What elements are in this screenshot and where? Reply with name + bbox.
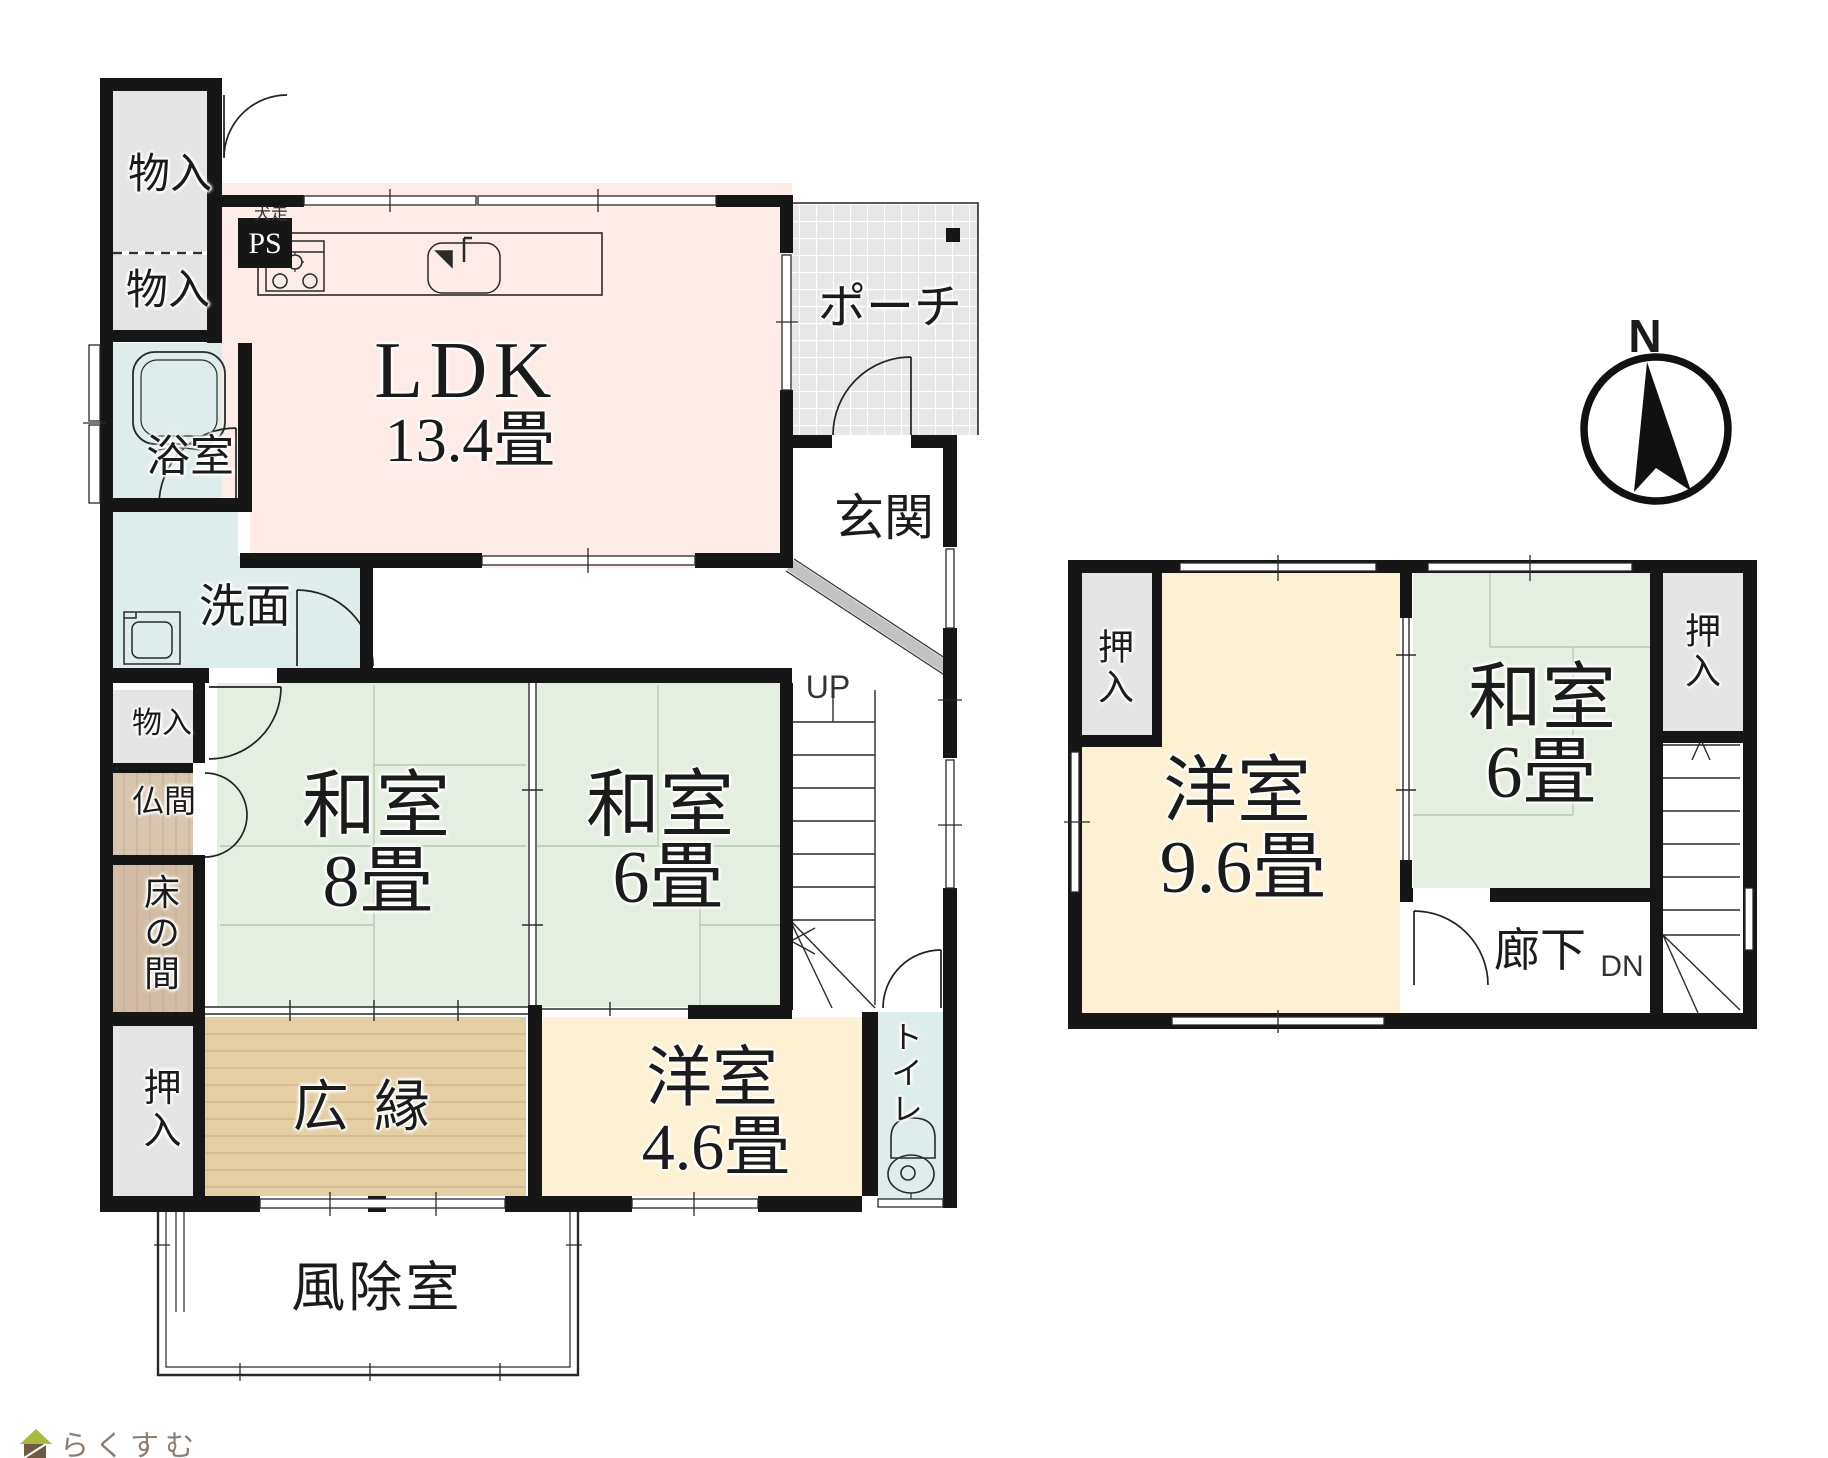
porch-pillar xyxy=(946,228,960,242)
label-oshiire-2f-left: 押入 xyxy=(1095,628,1131,709)
label-oshiire-2f-right: 押入 xyxy=(1682,612,1718,693)
label-windbreak: 風除室 xyxy=(291,1261,463,1315)
label-storage-small: 物入 xyxy=(132,709,192,739)
label-youshitsu96-size: 9.6畳 xyxy=(1160,831,1327,905)
label-hiroen: 広縁 xyxy=(293,1080,455,1136)
stairs-2f xyxy=(1663,740,1740,1013)
label-washitsu6-2f-size: 6畳 xyxy=(1486,736,1597,810)
label-youshitsu46-name: 洋室 xyxy=(646,1046,778,1112)
label-porch: ポーチ xyxy=(818,284,962,332)
door-backdoor xyxy=(224,95,287,158)
label-stairs-up: UP xyxy=(806,671,850,703)
label-ldk-name: LDK xyxy=(374,331,558,411)
label-bath: 浴室 xyxy=(146,435,234,479)
door-toilet xyxy=(883,950,941,1008)
label-compass-north: N xyxy=(1628,313,1661,359)
floorplan-page: 物入 物入 犬走 PS 浴室 洗面 LDK 13.4畳 ポーチ 玄関 物入 仏間… xyxy=(0,0,1828,1458)
label-butsuma: 仏間 xyxy=(132,785,196,817)
label-storage-mid: 物入 xyxy=(126,270,210,312)
north-arrow-icon xyxy=(1584,357,1728,501)
label-ldk-size: 13.4畳 xyxy=(385,410,556,472)
stairs-1f xyxy=(790,690,875,1008)
logo-house-icon xyxy=(20,1429,52,1458)
door-hallway-2f xyxy=(1414,911,1488,985)
label-washitsu6-1f-name: 和室 xyxy=(586,769,734,843)
label-washitsu8-size: 8畳 xyxy=(323,845,434,919)
label-hallway: 廊下 xyxy=(1494,928,1586,974)
label-washroom: 洗面 xyxy=(199,584,291,630)
label-toilet: トイレ xyxy=(889,1020,921,1128)
label-oshiire-1f: 押入 xyxy=(139,1067,177,1152)
label-stairs-down: DN xyxy=(1600,952,1643,982)
label-pipe-space: PS xyxy=(248,229,281,259)
logo-text: らくすむ xyxy=(60,1433,200,1458)
label-youshitsu96-name: 洋室 xyxy=(1163,755,1311,829)
label-washitsu8-name: 和室 xyxy=(302,770,450,844)
label-inubashiri: 犬走 xyxy=(254,206,288,223)
label-youshitsu46-size: 4.6畳 xyxy=(642,1115,791,1181)
label-storage-top: 物入 xyxy=(128,154,212,196)
entrance-step xyxy=(786,559,954,676)
label-washitsu6-2f-name: 和室 xyxy=(1468,662,1616,736)
label-tokonoma: 床の間 xyxy=(141,874,177,995)
label-washitsu6-1f-size: 6畳 xyxy=(613,841,724,915)
label-entrance: 玄関 xyxy=(834,493,934,543)
stairs-1f-arrow-icon xyxy=(791,928,815,954)
